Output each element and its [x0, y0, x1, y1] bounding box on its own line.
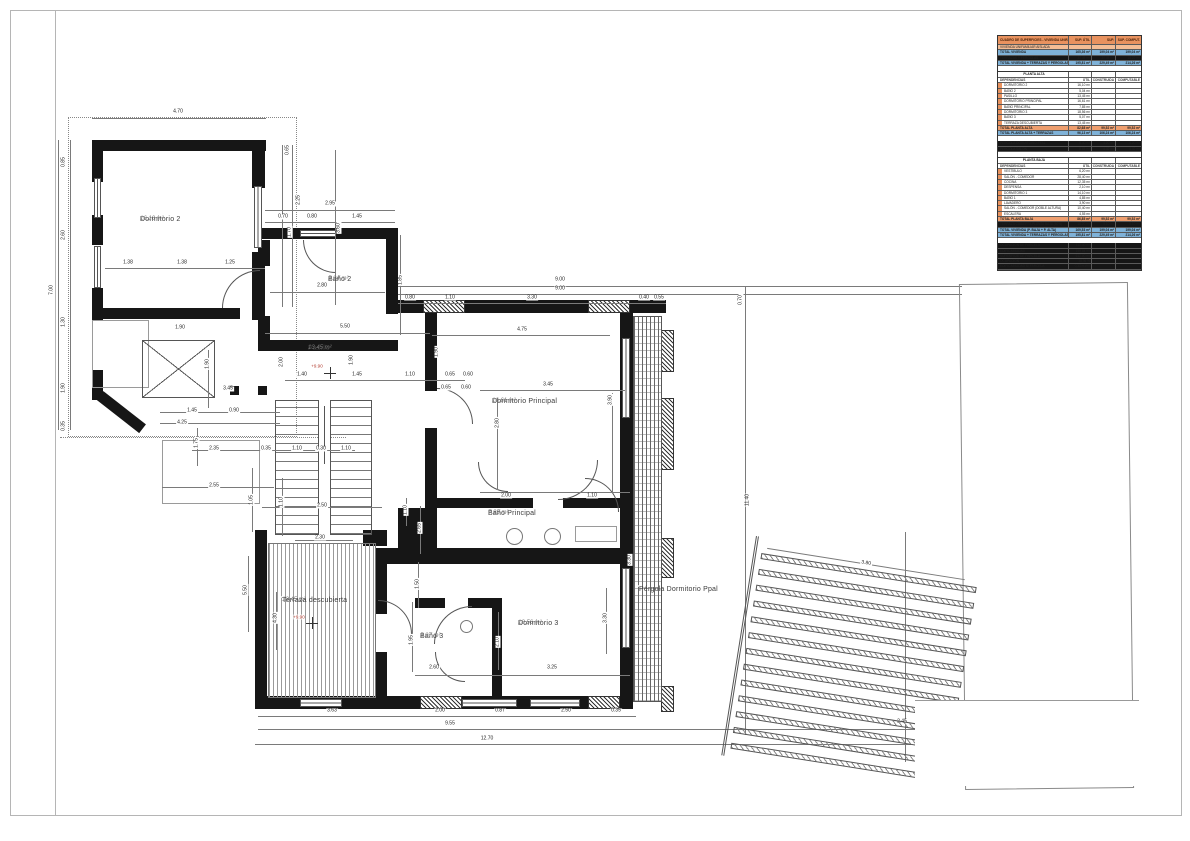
table-cell-label: DORMITORIO 1: [998, 191, 1068, 195]
table-cell-value: 4,20 m²: [1091, 141, 1115, 145]
dimension-label: 0.65: [440, 386, 452, 391]
dimension-label: 0.55: [653, 296, 665, 301]
table-cell-value: [1091, 83, 1115, 87]
table-cell-label: TOTAL VIVIENDA + TERRAZAS Y PÉRGOLAS: [998, 61, 1068, 65]
area-summary-table: CUADRO DE SUPERFICIES - VIVIENDA UNIFAMI…: [997, 35, 1142, 271]
table-cell-value: 199,04 m²: [1091, 50, 1115, 54]
table-cell-value: 214,26 m²: [1115, 233, 1141, 237]
dimension-label: 1.95: [410, 634, 415, 646]
table-cell-label: TOTAL VIVIENDA: [998, 50, 1068, 54]
dimension-line: [415, 675, 630, 676]
table-cell-value: 8,40 m²: [1068, 141, 1091, 145]
window: [622, 338, 630, 418]
dimension-label: 1.38: [122, 261, 134, 266]
table-cell-value: ÚTIL: [1068, 78, 1091, 82]
dimension-label: 2.95: [324, 202, 336, 207]
window: [94, 178, 101, 218]
table-cell-label: PASILLO: [998, 94, 1068, 98]
dimension-label: 2.80: [496, 417, 501, 429]
table-cell-value: [1115, 180, 1141, 184]
dimension-label: 1.90: [350, 354, 355, 366]
table-cell-value: [1068, 158, 1091, 163]
sheet-margin-line: [55, 10, 56, 816]
table-cell-value: 12,35 m²: [1068, 180, 1091, 184]
table-cell-label: BAÑO 3: [998, 115, 1068, 119]
table-cell-value: 99,52 m²: [1115, 126, 1141, 130]
table-cell-label: VIVIENDA UNIFAMILIAR AISLADA: [998, 45, 1068, 49]
table-cell-value: [1091, 206, 1115, 210]
table-cell-label: TERRAZA DESCUBIERTA: [998, 121, 1068, 125]
dimension-label: 1.90: [174, 326, 186, 331]
dimension-line: [497, 398, 498, 490]
table-cell-value: [1115, 254, 1141, 258]
table-cell-value: 18,20 m²: [1068, 222, 1091, 226]
dimension-line: [160, 412, 280, 413]
dimension-label: 2.50: [316, 504, 328, 509]
room-name: Pérgola Dormitorio Ppal: [639, 586, 718, 593]
window: [300, 230, 336, 237]
table-cell-value: [1115, 99, 1141, 103]
dimension-label: 1.10: [404, 373, 416, 378]
table-cell-value: [1091, 105, 1115, 109]
table-cell-value: 28,40 m²: [1068, 175, 1091, 179]
white-mask: [915, 700, 1139, 786]
table-cell-label: DORMITORIO 2: [998, 83, 1068, 87]
dimension-line: [398, 303, 666, 304]
table-cell-label: SALÓN - COMEDOR (DOBLE ALTURA): [998, 206, 1068, 210]
table-cell-value: [1115, 89, 1141, 93]
wall-segment: [492, 598, 502, 698]
table-cell-value: 112,40 m²: [1068, 243, 1091, 247]
insulation-hatch: [661, 538, 674, 578]
table-cell-value: [1115, 196, 1141, 200]
table-cell-value: [1091, 259, 1115, 263]
dimension-label: 1.10: [340, 447, 352, 452]
table-cell-value: [1115, 249, 1141, 253]
table-cell-value: 106,24 m²: [1091, 131, 1115, 135]
window: [300, 699, 342, 707]
dimension-label: 1.75: [195, 437, 200, 449]
dimension-label: 2.00: [434, 709, 446, 714]
dimension-label: 1.10: [291, 447, 303, 452]
table-cell-value: [1115, 115, 1141, 119]
table-cell-value: 18,56 m²: [1068, 110, 1091, 114]
elevation-label: +9.90: [293, 615, 304, 620]
table-cell-value: 13,45 m²: [1068, 94, 1091, 98]
dimension-label: 0.80: [404, 296, 416, 301]
table-cell-value: 214,26 m²: [1115, 61, 1141, 65]
table-cell-label: TOTAL PLANTA BAJA: [998, 217, 1068, 221]
table-cell-value: [1115, 206, 1141, 210]
window: [622, 568, 630, 648]
table-cell-value: 16,10 m²: [1068, 83, 1091, 87]
dimension-label: 4.25: [176, 421, 188, 426]
insulation-hatch: [661, 330, 674, 372]
table-cell-value: 229,49 m²: [1091, 61, 1115, 65]
dimension-label: 0.87: [494, 709, 506, 714]
dimension-label: 9.55: [444, 722, 456, 727]
sink-fixture: [506, 528, 523, 545]
table-cell-value: [1091, 169, 1115, 173]
room-area: 13.45 m²: [308, 345, 332, 351]
dimension-label: 0.85: [62, 156, 67, 168]
dimension-label: 2.35: [208, 447, 220, 452]
room-label: Pérgola Dormitorio Ppal: [637, 585, 641, 587]
dimension-label: 2.00: [280, 356, 285, 368]
table-cell-value: SUP. ÚTIL: [1068, 36, 1091, 44]
dimension-line: [398, 294, 962, 295]
wall-segment: [92, 140, 103, 182]
table-cell-value: 165,36 m²: [1068, 50, 1091, 54]
table-cell-value: COMPUTABLE: [1115, 164, 1141, 168]
table-cell-value: [1115, 45, 1141, 49]
table-cell-value: 15,22 m²: [1115, 56, 1141, 60]
window: [462, 699, 517, 707]
table-section-header: PLANTA BAJA: [998, 157, 1141, 164]
dimension-label: 0.60: [460, 386, 472, 391]
dimension-label: 3.30: [628, 554, 633, 566]
wall-segment: [252, 140, 265, 188]
table-cell-value: [1115, 264, 1141, 268]
table-cell-label: TOTAL VIVIENDA (P. BAJA + P. ALTA): [998, 228, 1068, 232]
wall-segment: [386, 228, 398, 314]
table-cell-label: BAÑO 1: [998, 196, 1068, 200]
dimension-label: 4.30: [274, 612, 279, 624]
table-cell-value: 30,45 m²: [1068, 56, 1091, 60]
table-cell-value: [1115, 175, 1141, 179]
table-cell-value: 8,65 m²: [1068, 147, 1091, 151]
insulation-hatch: [661, 398, 674, 470]
table-cell-label: TOTAL PLANTA ALTA: [998, 126, 1068, 130]
table-cell-value: 0,33 m²/m²: [1068, 264, 1091, 268]
dimension-label: 3.30: [604, 612, 609, 624]
table-cell-value: [1115, 158, 1141, 163]
dimension-label: 3.25: [546, 666, 558, 671]
table-cell-value: 9,10 m²: [1115, 222, 1141, 226]
sink-fixture: [544, 528, 561, 545]
dimension-label: 1.45: [186, 409, 198, 414]
dimension-label: 2.30: [314, 536, 326, 541]
wall-segment: [415, 598, 445, 608]
dimension-label: 1.10: [586, 494, 598, 499]
table-cell-label: PLANTA BAJA: [998, 158, 1068, 163]
room-area: 13.45 m²: [282, 597, 306, 603]
table-cell-value: COMPUTABLE: [1115, 78, 1141, 82]
table-cell-value: 16,61 m²: [1068, 99, 1091, 103]
table-cell-label: TERRAZA CUBIERTA PLANTA BAJA (50%): [998, 222, 1068, 226]
table-cell-label: PÉRGOLA SALÓN: [998, 147, 1068, 151]
table-cell-label: SALÓN - COMEDOR: [998, 175, 1068, 179]
wall-segment: [92, 308, 240, 319]
table-cell-value: [1115, 191, 1141, 195]
dimension-label: 2.25: [297, 194, 302, 206]
table-cell-value: 99,52 m²: [1091, 217, 1115, 221]
dimension-line: [265, 333, 430, 334]
elevation-cross: [312, 617, 313, 629]
dimension-label: 0.40: [638, 296, 650, 301]
table-cell-label: DESPENSA: [998, 185, 1068, 189]
dimension-label: 2.60: [62, 229, 67, 241]
table-cell-value: [1091, 254, 1115, 258]
window: [254, 186, 262, 248]
table-cell-value: [1091, 264, 1115, 268]
dimension-line: [105, 268, 265, 269]
table-cell-value: [1091, 243, 1115, 247]
dimension-label: 1.05: [250, 494, 255, 506]
table-cell-label: CUADRO DE SUPERFICIES - VIVIENDA UNIFAMI…: [998, 36, 1068, 44]
table-cell-value: [1115, 243, 1141, 247]
dimension-line: [265, 210, 395, 211]
room-label: Terraza descubierta13.45 m²: [280, 596, 284, 598]
dimension-label: 0.90: [228, 409, 240, 414]
table-cell-value: 99,52 m²: [1115, 217, 1141, 221]
table-cell-value: [1115, 72, 1141, 77]
room-area: 18.56 m²: [518, 620, 542, 626]
dimension-line: [432, 335, 610, 336]
room-area: 16.61 m²: [492, 398, 516, 404]
wall-segment: [255, 530, 267, 709]
dimension-label: 1.90: [206, 358, 211, 370]
table-cell-value: 4,32 m²: [1091, 147, 1115, 151]
table-cell-value: 2,10 m²: [1068, 185, 1091, 189]
dimension-label: 2.50: [560, 709, 572, 714]
table-cell-value: 30,45 m²: [1091, 56, 1115, 60]
table-cell-value: [1091, 191, 1115, 195]
room-area: 5.07 m²: [420, 633, 440, 639]
dimension-label: 1.45: [351, 373, 363, 378]
table-cell-value: [1091, 249, 1115, 253]
outline: [575, 526, 617, 542]
table-cell-value: 106,24 m²: [1115, 131, 1141, 135]
table-cell-value: [1091, 110, 1115, 114]
dimension-label: 1.10: [280, 496, 285, 508]
dimension-label: 1.45: [351, 215, 363, 220]
dimension-line: [58, 140, 59, 430]
table-cell-value: CONSTRUIDA: [1091, 164, 1115, 168]
wall-segment: [375, 652, 387, 704]
table-cell-label: OCUPACIÓN: [998, 259, 1068, 263]
table-cell-label: COCINA: [998, 180, 1068, 184]
floor-plan-sheet: 4.700.852.601.301.900.357.003.601.381.38…: [0, 0, 1190, 841]
dimension-label: 7.00: [50, 284, 55, 296]
dimension-label: 4.70: [172, 110, 184, 115]
table-cell-value: 199,04 m²: [1115, 50, 1141, 54]
window: [530, 699, 580, 707]
table-cell-label: PÉRGOLA DORMITORIO PPAL: [998, 141, 1068, 145]
table-cell-value: [1091, 185, 1115, 189]
table-cell-label: TOTAL PLANTA ALTA + TERRAZAS: [998, 131, 1068, 135]
window: [94, 246, 101, 288]
pergola-strip: [633, 316, 662, 702]
wall-segment: [92, 215, 103, 245]
table-cell-label: BAÑO PRINCIPAL: [998, 105, 1068, 109]
table-cell-value: [1115, 110, 1141, 114]
dimension-line: [612, 393, 613, 493]
table-cell-value: [1068, 45, 1091, 49]
table-cell-value: 195,81 m²: [1068, 61, 1091, 65]
dimension-label: 0.70: [277, 215, 289, 220]
table-cell-value: [1091, 196, 1115, 200]
table-cell-label: ESCALERA: [998, 212, 1068, 216]
dimension-label: 2.00: [500, 494, 512, 499]
table-cell-value: [1091, 180, 1115, 184]
dimension-label: 0.35: [610, 709, 622, 714]
table-cell-value: 4,55 m²: [1068, 212, 1091, 216]
table-cell-label: OCUPACIÓN DE PARCELA: [998, 243, 1068, 247]
table-cell-label: EDIFICABILIDAD: [998, 249, 1068, 253]
outline: [92, 320, 149, 388]
dimension-line: [270, 292, 385, 293]
table-cell-value: [1068, 72, 1091, 77]
dimension-label: 0.60: [462, 373, 474, 378]
dimension-label: 2.55: [208, 484, 220, 489]
table-cell-label: SUPERFICIE DE PARCELA: [998, 254, 1068, 258]
dimension-line: [70, 140, 71, 430]
table-cell-value: 13,45 m²: [1068, 121, 1091, 125]
dimension-label: 0.65: [286, 144, 291, 156]
dimension-label: 4.75: [516, 328, 528, 333]
table-cell-value: 199,04 m²: [1115, 228, 1141, 232]
room-area: 5.04 m²: [328, 276, 348, 282]
table-cell-value: 3,90 m²: [1068, 201, 1091, 205]
dimension-label: 0.80: [306, 215, 318, 220]
table-cell-value: 6,20 m²: [1068, 169, 1091, 173]
dimension-label: 1.25: [224, 261, 236, 266]
insulation-hatch: [661, 686, 674, 712]
table-cell-value: [1091, 121, 1115, 125]
table-cell-value: [1115, 94, 1141, 98]
table-cell-value: [1115, 212, 1141, 216]
table-cell-value: [1115, 105, 1141, 109]
dimension-label: 1.38: [176, 261, 188, 266]
dimension-label: 1.90: [62, 382, 67, 394]
table-cell-label: DORMITORIO 3: [998, 110, 1068, 114]
table-cell-value: [1115, 259, 1141, 263]
dimension-label: 1.10: [404, 504, 409, 516]
table-cell-label: TOTAL VIVIENDA + TERRAZAS Y PÉRGOLAS: [998, 233, 1068, 237]
elevation-label: +9.90: [311, 364, 322, 369]
table-cell-value: [1091, 201, 1115, 205]
dimension-label: 2.65: [418, 522, 423, 534]
dimension-label: 5.50: [339, 325, 351, 330]
staircase-arrow: [324, 406, 325, 464]
table-cell-value: [1091, 89, 1115, 93]
dimension-label: 3.63: [326, 709, 338, 714]
table-cell-value: 99,52 m²: [1091, 126, 1115, 130]
dimension-label: 0.30: [315, 447, 327, 452]
terrace-hatch: [268, 543, 376, 698]
table-cell-value: [1091, 99, 1115, 103]
void-cross: [142, 340, 215, 398]
deck-dim-label: 3.80: [860, 560, 872, 567]
dimension-label: 3.45: [542, 383, 554, 388]
table-cell-value: 195,81 m²: [1068, 233, 1091, 237]
table-cell-value: [1091, 158, 1115, 163]
room-area: 7.85 m²: [488, 510, 508, 516]
table-cell-value: [1115, 201, 1141, 205]
table-cell-value: 612,00 m²: [1068, 254, 1091, 258]
table-cell-label: DORMITORIO PRINCIPAL: [998, 99, 1068, 103]
table-cell-label: VESTÍBULO: [998, 169, 1068, 173]
table-cell-label: BAÑO 2: [998, 89, 1068, 93]
table-row: EDIFICABILIDAD S/ PARCELA0,33 m²/m²: [998, 264, 1141, 269]
dimension-line: [92, 118, 266, 119]
table-cell-value: [1115, 121, 1141, 125]
dimension-label: 3.90: [609, 394, 614, 406]
table-cell-value: 4,32 m²: [1115, 147, 1141, 151]
dimension-label: 1.10: [444, 296, 456, 301]
elevation-cross: [330, 367, 331, 379]
dimension-label: 9.00: [554, 287, 566, 292]
table-cell-value: 18,36 %: [1068, 259, 1091, 263]
wall-segment: [92, 140, 266, 151]
table-cell-value: [1115, 185, 1141, 189]
dimension-label: 1.50: [416, 578, 421, 590]
table-cell-value: 4,20 m²: [1115, 141, 1141, 145]
table-cell-value: 96,13 m²: [1068, 131, 1091, 135]
table-cell-label: DEPENDENCIAS: [998, 78, 1068, 82]
table-cell-value: [1115, 169, 1141, 173]
table-cell-value: 10,40 m²: [1068, 206, 1091, 210]
table-cell-value: 82,68 m²: [1068, 126, 1091, 130]
table-cell-value: [1091, 115, 1115, 119]
table-cell-value: 5,07 m²: [1068, 115, 1091, 119]
room-area: 16.10 m²: [140, 216, 164, 222]
dimension-label: 1.40: [296, 373, 308, 378]
table-cell-value: 199,04 m²: [1068, 249, 1091, 253]
table-cell-value: 229,49 m²: [1091, 233, 1115, 237]
table-cell-value: ÚTIL: [1068, 164, 1091, 168]
dimension-label: 3.30: [526, 296, 538, 301]
table-cell-value: 7,85 m²: [1068, 105, 1091, 109]
table-cell-value: 169,53 m²: [1068, 228, 1091, 232]
table-cell-value: 9,10 m²: [1091, 222, 1115, 226]
dimension-label: 2.60: [428, 666, 440, 671]
dimension-label: 1.90: [435, 346, 440, 358]
table-row: CUADRO DE SUPERFICIES - VIVIENDA UNIFAMI…: [998, 36, 1141, 45]
dimension-line: [282, 145, 283, 307]
dimension-line: [265, 222, 395, 223]
table-cell-label: DEPENDENCIAS: [998, 164, 1068, 168]
dimension-label: 3.45: [222, 387, 234, 392]
table-section-header: PLANTA ALTA: [998, 71, 1141, 78]
dimension-label: 2.80: [316, 284, 328, 289]
table-cell-label: PLANTA ALTA: [998, 72, 1068, 77]
table-cell-label: LAVADERO: [998, 201, 1068, 205]
table-cell-value: [1091, 94, 1115, 98]
dimension-line: [285, 380, 465, 381]
table-cell-value: SUP. CONSTR.: [1091, 36, 1115, 44]
dimension-label: 2.10: [496, 636, 501, 648]
dimension-label: 1.70: [288, 226, 293, 238]
dimension-label: 1.85: [399, 274, 404, 286]
dimension-line: [480, 390, 625, 391]
wall-segment: [258, 386, 267, 395]
dimension-label: 0.70: [739, 294, 744, 306]
table-cell-value: 5,04 m²: [1068, 89, 1091, 93]
table-cell-value: 4,85 m²: [1068, 196, 1091, 200]
dimension-label: 0.65: [444, 373, 456, 378]
insulation-hatch: [423, 300, 465, 313]
dimension-label: 3.60: [337, 222, 342, 234]
table-cell-value: CONSTRUIDA: [1091, 78, 1115, 82]
dimension-label: 12.70: [480, 737, 495, 742]
dimension-label: 11.40: [746, 493, 751, 507]
dimension-label: 0.35: [260, 447, 272, 452]
table-cell-value: [1115, 83, 1141, 87]
dimension-line: [398, 286, 962, 287]
table-cell-value: SUP. COMPUT.: [1115, 36, 1141, 44]
